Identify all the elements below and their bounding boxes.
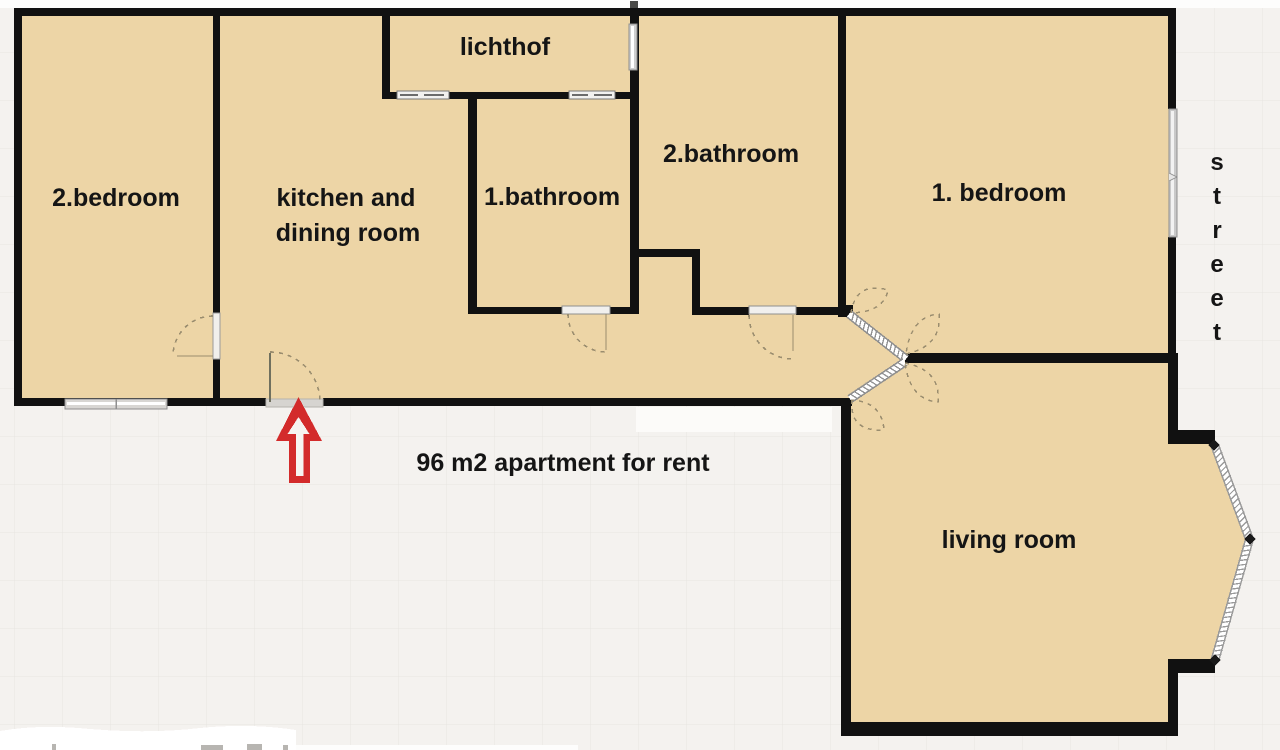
svg-text:e: e bbox=[1210, 285, 1223, 312]
svg-text:96 m2 apartment for rent: 96 m2 apartment for rent bbox=[416, 449, 710, 477]
svg-text:2.bedroom: 2.bedroom bbox=[52, 184, 180, 212]
svg-text:1. bedroom: 1. bedroom bbox=[932, 179, 1067, 207]
svg-text:t: t bbox=[1213, 319, 1221, 346]
svg-text:r: r bbox=[1212, 217, 1221, 244]
svg-text:lichthof: lichthof bbox=[460, 33, 551, 61]
svg-text:e: e bbox=[1210, 251, 1223, 278]
svg-text:1.bathroom: 1.bathroom bbox=[484, 183, 620, 211]
svg-text:s: s bbox=[1210, 149, 1223, 176]
svg-text:kitchen and: kitchen and bbox=[277, 184, 416, 212]
svg-text:living room: living room bbox=[942, 526, 1077, 554]
svg-text:dining room: dining room bbox=[276, 219, 420, 247]
svg-text:t: t bbox=[1213, 183, 1221, 210]
svg-text:2.bathroom: 2.bathroom bbox=[663, 140, 799, 168]
